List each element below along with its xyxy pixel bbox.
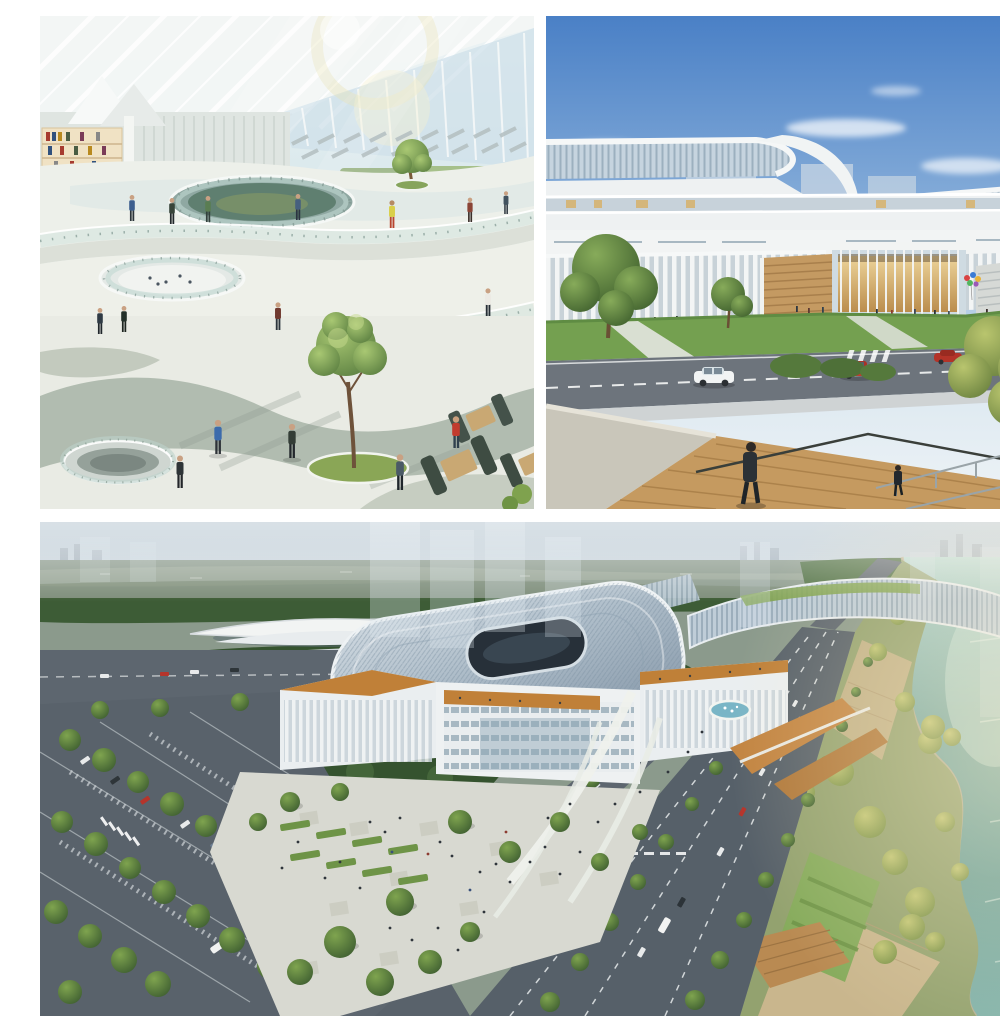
sun-glare [590, 522, 1000, 1016]
ground-floor [40, 316, 534, 509]
entrance-pavilion [830, 242, 970, 316]
aerial-illustration [40, 522, 1000, 1016]
panel-street-elevation [546, 16, 1000, 509]
street-illustration [546, 16, 1000, 509]
side-stair [976, 258, 1000, 316]
panel-aerial-site [40, 522, 1000, 1016]
panel-atrium-interior [40, 16, 534, 509]
atrium-illustration [40, 16, 534, 509]
